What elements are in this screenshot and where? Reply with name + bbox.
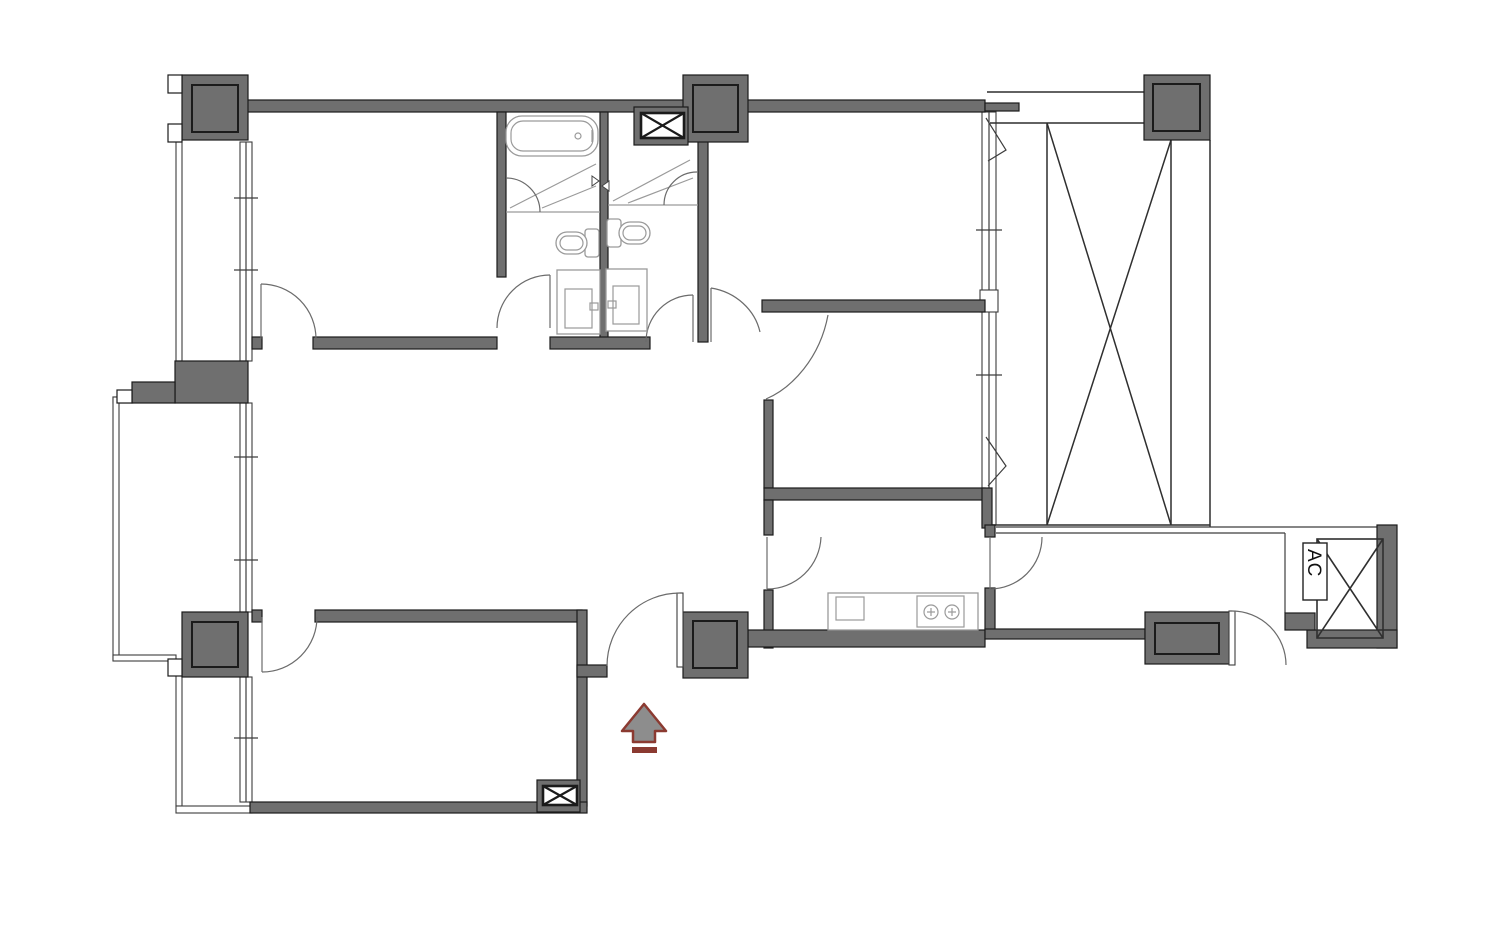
wall-corridor-door-jamb-bottom xyxy=(985,588,995,633)
entry-arrow xyxy=(622,704,666,753)
shaft-x-boxes xyxy=(537,107,688,812)
void-area xyxy=(987,92,1210,527)
door-leaf-entry xyxy=(677,593,683,667)
balcony-walls xyxy=(113,142,252,813)
wall-bed4-top xyxy=(315,610,582,622)
wall-bottom-corridor xyxy=(985,629,1145,639)
ac-label: AC xyxy=(1303,549,1324,577)
wall-kitchen-right-junction xyxy=(982,488,992,528)
balcony-outer-wall-wide xyxy=(113,397,119,660)
shower1-swing-line xyxy=(542,186,596,208)
wall-end-stub xyxy=(168,124,182,142)
door-arc-bed1 xyxy=(261,284,316,339)
wall-stub-bed4-door xyxy=(252,610,262,622)
wall-bed4-right xyxy=(577,610,587,806)
balcony-bottom-wall xyxy=(176,806,252,813)
balcony-bottom-cap xyxy=(113,655,176,661)
wall-entry-left xyxy=(577,665,607,677)
door-arc-bed2 xyxy=(711,288,760,332)
shower2-swing-line xyxy=(628,178,693,203)
column-left-middle-step xyxy=(132,382,175,403)
door-arc-bath1 xyxy=(497,275,550,328)
wall-end-stub xyxy=(117,390,132,403)
balcony-outer-wall-upper xyxy=(176,142,182,361)
wall-end-stub xyxy=(168,659,182,676)
toilet2-bowl xyxy=(619,222,650,244)
balcony-outer-wall-lower xyxy=(176,661,182,806)
door-arc-entry xyxy=(607,593,680,666)
door-arc-bed3 xyxy=(766,315,828,399)
wall-bath2-right xyxy=(698,140,708,342)
wall-bed1-bottom xyxy=(313,337,497,349)
door-arc-kitchen xyxy=(767,537,821,589)
wall-top xyxy=(245,100,985,112)
exterior-windows xyxy=(234,112,1006,802)
wall-bed3-left-upper xyxy=(764,400,773,488)
wall-bed2-bottom xyxy=(762,300,985,312)
wall-kitchen-left-upper xyxy=(764,500,773,535)
void-x-diagonal xyxy=(1047,140,1171,525)
door-arc-corridor-end xyxy=(1232,611,1286,665)
door-arc-bath2 xyxy=(646,295,693,342)
floor-plan-drawing: AC xyxy=(0,0,1500,949)
column-bottom-right-wide xyxy=(1145,612,1230,664)
wall-top-stub-right xyxy=(985,103,1019,111)
door-arc-bed4 xyxy=(262,617,317,672)
door-leaf-corridor-end xyxy=(1229,611,1235,665)
shower2-swing-line xyxy=(613,160,690,201)
wall-bath-bottom xyxy=(550,337,650,349)
entry-direction-arrow-icon xyxy=(622,704,666,742)
wall-bed1-bath1 xyxy=(497,112,506,277)
wall-ac-step xyxy=(1285,613,1315,630)
toilet1-bowl xyxy=(556,232,587,254)
wall-bottom-main xyxy=(748,630,985,647)
interior-walls xyxy=(245,100,1397,813)
door-arc-corridor xyxy=(990,537,1042,589)
structural-columns xyxy=(117,75,1230,678)
entry-arrow-bar xyxy=(632,747,657,753)
wall-bed3-kitchen xyxy=(764,488,985,500)
vanity2-counter xyxy=(606,269,647,331)
wall-end-stub xyxy=(168,75,182,93)
shower2-door-arc xyxy=(664,172,697,205)
kitchen-fixtures xyxy=(828,593,978,630)
shower-pivot-triangle xyxy=(592,176,599,186)
floor-plan-canvas: AC xyxy=(0,0,1500,949)
column-left-middle xyxy=(175,361,248,403)
shower1-swing-line xyxy=(510,164,596,208)
vanity1-counter xyxy=(557,270,600,334)
void-x-diagonal xyxy=(1047,123,1171,525)
wall-corridor-door-jamb-top xyxy=(985,525,995,537)
